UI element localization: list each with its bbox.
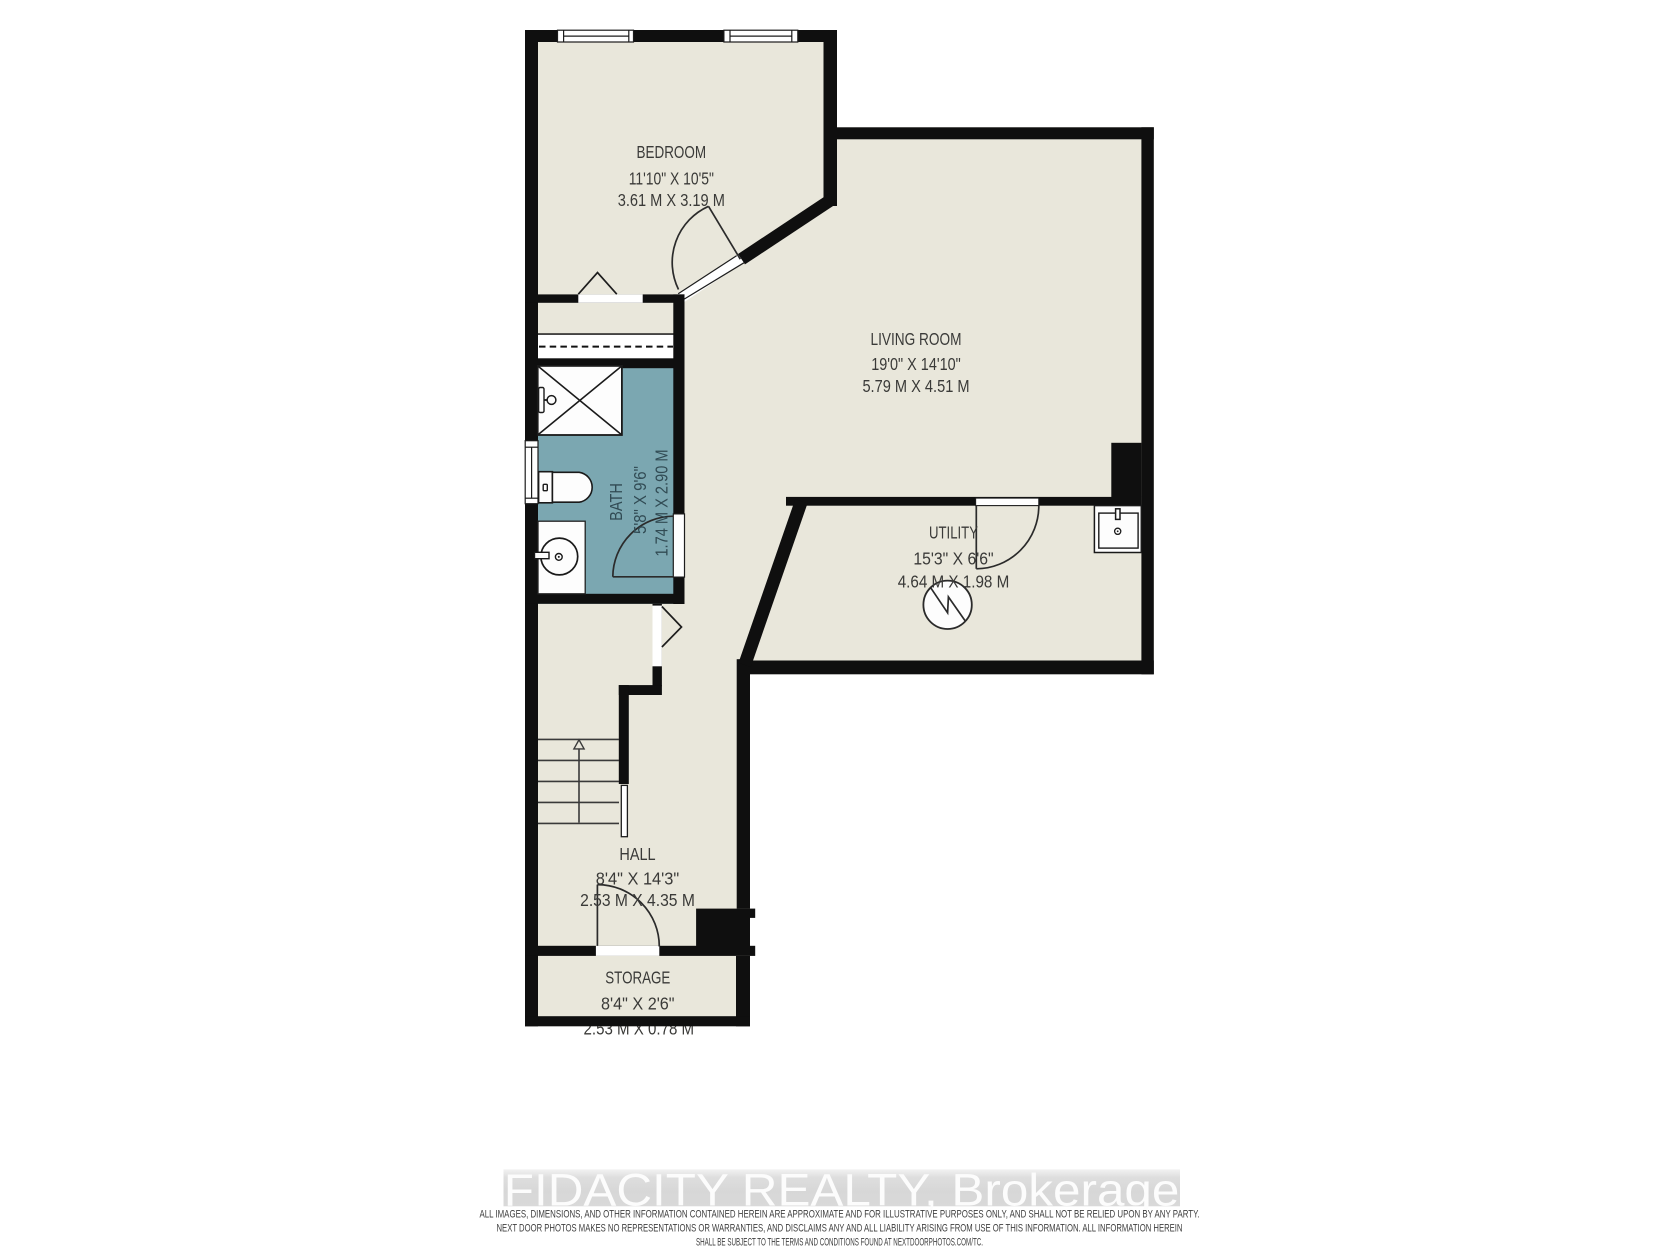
svg-text:NEXT DOOR PHOTOS MAKES NO REPR: NEXT DOOR PHOTOS MAKES NO REPRESENTATION… [497,1222,1183,1234]
svg-text:5.79 M X 4.51 M: 5.79 M X 4.51 M [862,376,969,396]
svg-text:3.61 M X 3.19 M: 3.61 M X 3.19 M [618,190,725,210]
svg-text:11'10" X 10'5": 11'10" X 10'5" [629,169,714,189]
svg-text:4.64 M X 1.98 M: 4.64 M X 1.98 M [898,571,1010,591]
svg-text:BEDROOM: BEDROOM [637,142,707,162]
svg-text:8'4" X 14'3": 8'4" X 14'3" [596,869,679,889]
svg-text:LIVING ROOM: LIVING ROOM [871,329,962,349]
svg-text:5'8" X 9'6": 5'8" X 9'6" [630,466,650,534]
svg-text:19'0" X 14'10": 19'0" X 14'10" [871,354,961,374]
svg-text:1.74 M X 2.90 M: 1.74 M X 2.90 M [652,449,672,556]
svg-text:STORAGE: STORAGE [605,968,670,988]
svg-text:15'3" X 6'6": 15'3" X 6'6" [913,549,993,569]
svg-text:ALL IMAGES, DIMENSIONS, AND OT: ALL IMAGES, DIMENSIONS, AND OTHER INFORM… [480,1208,1200,1220]
svg-text:BATH: BATH [606,483,626,521]
svg-text:UTILITY: UTILITY [929,522,978,542]
svg-text:HALL: HALL [619,844,656,864]
svg-text:SHALL BE SUBJECT TO THE TERMS: SHALL BE SUBJECT TO THE TERMS AND CONDIT… [696,1236,983,1248]
svg-text:8'4" X 2'6": 8'4" X 2'6" [601,994,675,1014]
svg-text:2.53 M X 4.35 M: 2.53 M X 4.35 M [580,890,695,910]
